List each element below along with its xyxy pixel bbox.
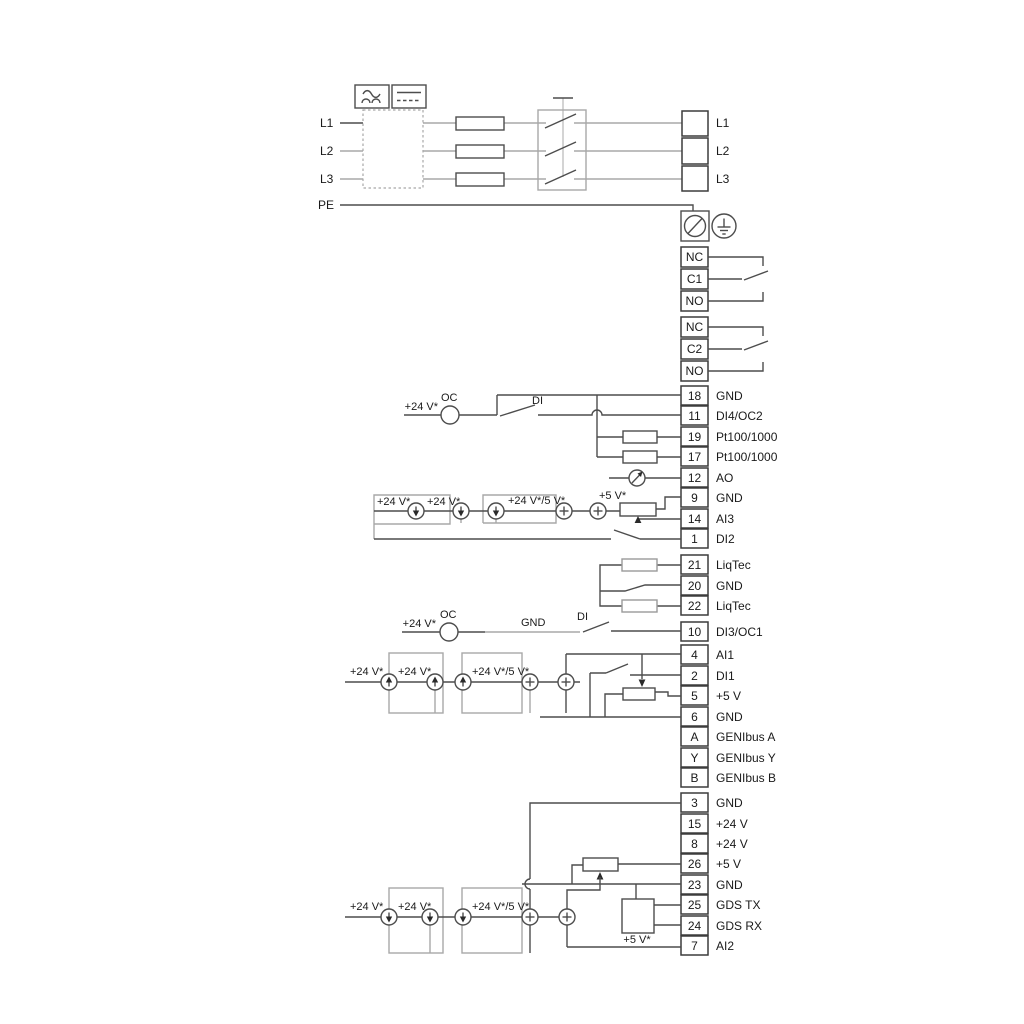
terminal-number: B bbox=[690, 771, 698, 785]
terminal-number: 7 bbox=[691, 939, 698, 953]
terminal-number: 14 bbox=[688, 512, 702, 526]
terminal-label: L1 bbox=[716, 116, 730, 130]
voltage-label: +5 V* bbox=[599, 490, 627, 502]
terminal-label: GND bbox=[716, 796, 743, 810]
switch-blade bbox=[614, 530, 640, 539]
terminal-number: 19 bbox=[688, 430, 702, 444]
io-mid-wiring: +24 V* OC GND DI +24 V* +24 V* +24 V*/5 … bbox=[345, 609, 681, 717]
terminal-number: 3 bbox=[691, 796, 698, 810]
switch-blade bbox=[545, 142, 576, 156]
terminal-label: +24 V bbox=[716, 817, 748, 831]
terminal-cell bbox=[682, 111, 708, 136]
current-source-plus-icon bbox=[559, 909, 575, 925]
relay1-block: NC C1 NO bbox=[681, 247, 768, 311]
wire bbox=[655, 692, 681, 696]
di-label: DI bbox=[577, 611, 588, 623]
analog-output-meter-icon bbox=[629, 470, 645, 486]
terminal-label: AI3 bbox=[716, 512, 734, 526]
voltage-label: +24 V* bbox=[350, 901, 384, 913]
current-source-down-icon bbox=[455, 909, 471, 925]
terminal-number: 2 bbox=[691, 669, 698, 683]
terminal-number: 11 bbox=[688, 409, 701, 423]
voltage-label: +5 V* bbox=[623, 934, 651, 946]
wire bbox=[605, 694, 623, 717]
terminal-number: 10 bbox=[688, 625, 702, 639]
potentiometer bbox=[623, 688, 655, 700]
terminal-label: Pt100/1000 bbox=[716, 450, 778, 464]
supply-filter-box bbox=[363, 110, 423, 188]
terminal-label: GENIbus A bbox=[716, 730, 775, 744]
voltage-label: +24 V* bbox=[403, 618, 437, 630]
wire bbox=[435, 690, 530, 713]
terminal-number: C2 bbox=[687, 342, 703, 356]
current-source-plus-icon bbox=[558, 674, 574, 690]
terminal-number: C1 bbox=[687, 272, 703, 286]
terminal-number: 9 bbox=[691, 491, 698, 505]
current-source-plus-icon bbox=[522, 674, 538, 690]
io-bottom-terminal-strip: 3 15 8 26 23 25 24 7 GND +24 V +24 V +5 … bbox=[681, 793, 762, 955]
terminal-number: 1 bbox=[691, 532, 698, 546]
ac-symbol-icon bbox=[355, 85, 389, 108]
terminal-cell bbox=[682, 138, 708, 164]
terminal-number: 5 bbox=[691, 689, 698, 703]
terminal-label: Pt100/1000 bbox=[716, 430, 778, 444]
mains-label-pe: PE bbox=[318, 198, 334, 212]
mains-input-section: L1 L2 L3 PE bbox=[318, 85, 736, 241]
switch-blade bbox=[744, 271, 768, 280]
earth-ground-icon bbox=[712, 214, 736, 238]
voltage-label: +24 V* bbox=[377, 496, 411, 508]
current-source-down-icon bbox=[381, 909, 397, 925]
terminal-number: 21 bbox=[688, 558, 702, 572]
wiring-diagram: L1 L2 L3 PE bbox=[0, 0, 1024, 1024]
resistor-pt100 bbox=[623, 431, 657, 443]
terminal-number: 24 bbox=[688, 919, 702, 933]
terminal-label: DI2 bbox=[716, 532, 735, 546]
switch-blade bbox=[744, 341, 768, 350]
terminal-number: NO bbox=[686, 364, 704, 378]
switch-blade bbox=[583, 622, 609, 632]
terminal-cell bbox=[682, 166, 708, 191]
terminal-number: NC bbox=[686, 250, 704, 264]
terminal-number: NC bbox=[686, 320, 704, 334]
liqtec-sensor-resistor bbox=[622, 600, 657, 612]
current-source-up-icon bbox=[381, 674, 397, 690]
current-source-up-icon bbox=[455, 674, 471, 690]
io-top-terminal-strip: 18 11 19 17 12 9 14 1 GND DI4/OC2 Pt100/… bbox=[681, 386, 778, 548]
fuse-l2 bbox=[456, 145, 504, 158]
terminal-label: GND bbox=[716, 491, 743, 505]
wire bbox=[590, 673, 606, 717]
voltage-label: +24 V* bbox=[350, 666, 384, 678]
open-collector-icon bbox=[441, 406, 459, 424]
pe-wire bbox=[340, 205, 693, 211]
potentiometer bbox=[583, 858, 618, 871]
current-source-plus-icon bbox=[522, 909, 538, 925]
terminal-number: Y bbox=[690, 751, 698, 765]
voltage-label: +24 V*/5 V* bbox=[472, 666, 530, 678]
dc-symbol-icon bbox=[392, 85, 426, 108]
relay-contact-wire bbox=[708, 327, 763, 371]
liqtec-sensor-resistor bbox=[622, 559, 657, 571]
mains-label-l3: L3 bbox=[320, 172, 334, 186]
terminal-label: GND bbox=[716, 389, 743, 403]
switch-blade bbox=[545, 170, 576, 184]
switch-blade bbox=[545, 114, 576, 128]
fuse-l1 bbox=[456, 117, 504, 130]
terminal-label: +24 V bbox=[716, 837, 748, 851]
gnd-label: GND bbox=[521, 617, 546, 629]
terminal-label: DI1 bbox=[716, 669, 735, 683]
io-top-wiring: +24 V* OC DI +24 V* +24 V* +24 V*/5 V* +… bbox=[374, 392, 681, 539]
terminal-number: 8 bbox=[691, 837, 698, 851]
io-bottom-wiring: +5 V* +24 V* +24 V* +24 V*/5 V* bbox=[345, 803, 681, 953]
terminal-number: 25 bbox=[688, 898, 702, 912]
switch-blade bbox=[606, 664, 628, 673]
grouping-box bbox=[462, 888, 522, 953]
voltage-label: +24 V*/5 V* bbox=[508, 495, 566, 507]
liqtec-terminal-strip: 21 20 22 LiqTec GND LiqTec bbox=[600, 555, 751, 615]
terminal-number: 20 bbox=[688, 579, 702, 593]
terminal-number: 26 bbox=[688, 857, 702, 871]
terminal-label: DI3/OC1 bbox=[716, 625, 763, 639]
terminal-label: AO bbox=[716, 471, 733, 485]
current-source-up-icon bbox=[427, 674, 443, 690]
mains-output-block: L1 L2 L3 bbox=[682, 111, 730, 191]
terminal-label: GENIbus B bbox=[716, 771, 776, 785]
terminal-number: A bbox=[690, 730, 698, 744]
terminal-number: 12 bbox=[688, 471, 702, 485]
terminal-label: AI2 bbox=[716, 939, 734, 953]
open-collector-icon bbox=[440, 623, 458, 641]
fuse-l3 bbox=[456, 173, 504, 186]
oc-label: OC bbox=[441, 392, 458, 404]
current-source-down-icon bbox=[422, 909, 438, 925]
wiper-arrow bbox=[639, 680, 646, 688]
voltage-label: +24 V*/5 V* bbox=[472, 901, 530, 913]
switch-blade bbox=[500, 405, 535, 416]
wire bbox=[574, 123, 682, 179]
current-source-plus-icon bbox=[556, 503, 572, 519]
potentiometer bbox=[620, 503, 656, 516]
terminal-label: LiqTec bbox=[716, 599, 751, 613]
terminal-label: L2 bbox=[716, 144, 730, 158]
relay-contact-wire bbox=[708, 257, 763, 301]
terminal-label: GND bbox=[716, 579, 743, 593]
terminal-label: GENIbus Y bbox=[716, 751, 776, 765]
wire bbox=[600, 585, 681, 591]
terminal-label: L3 bbox=[716, 172, 730, 186]
terminal-number: 22 bbox=[688, 599, 702, 613]
pe-screw-terminal bbox=[681, 211, 709, 241]
terminal-number: 6 bbox=[691, 710, 698, 724]
current-source-down-icon bbox=[488, 503, 504, 519]
mains-label-l2: L2 bbox=[320, 144, 334, 158]
main-switch-contactor bbox=[538, 98, 586, 190]
terminal-label: +5 V bbox=[716, 857, 741, 871]
terminal-number: NO bbox=[686, 294, 704, 308]
relay2-block: NC C2 NO bbox=[681, 317, 768, 381]
terminal-number: 17 bbox=[688, 450, 702, 464]
current-source-down-icon bbox=[453, 503, 469, 519]
terminal-label: +5 V bbox=[716, 689, 741, 703]
voltage-label: +24 V* bbox=[398, 666, 432, 678]
terminal-number: 23 bbox=[688, 878, 702, 892]
terminal-label: GDS TX bbox=[716, 898, 760, 912]
terminal-number: 18 bbox=[688, 389, 702, 403]
terminal-label: GDS RX bbox=[716, 919, 762, 933]
terminal-label: GND bbox=[716, 710, 743, 724]
terminal-label: AI1 bbox=[716, 648, 734, 662]
current-source-down-icon bbox=[408, 503, 424, 519]
wire bbox=[654, 905, 681, 925]
io-mid-terminal-strip: 10 4 2 5 6 A Y B DI3/OC1 AI1 DI1 +5 V GN… bbox=[681, 622, 776, 787]
wire bbox=[656, 497, 681, 509]
wire bbox=[538, 410, 681, 415]
terminal-number: 4 bbox=[691, 648, 698, 662]
gds-sensor-box bbox=[622, 899, 654, 933]
oc-label: OC bbox=[440, 609, 457, 621]
mains-label-l1: L1 bbox=[320, 116, 334, 130]
current-source-plus-icon bbox=[590, 503, 606, 519]
terminal-label: DI4/OC2 bbox=[716, 409, 763, 423]
terminal-label: LiqTec bbox=[716, 558, 751, 572]
resistor-pt100 bbox=[623, 451, 657, 463]
wire bbox=[572, 865, 583, 884]
voltage-label: +24 V* bbox=[405, 401, 439, 413]
terminal-label: GND bbox=[716, 878, 743, 892]
terminal-number: 15 bbox=[688, 817, 702, 831]
